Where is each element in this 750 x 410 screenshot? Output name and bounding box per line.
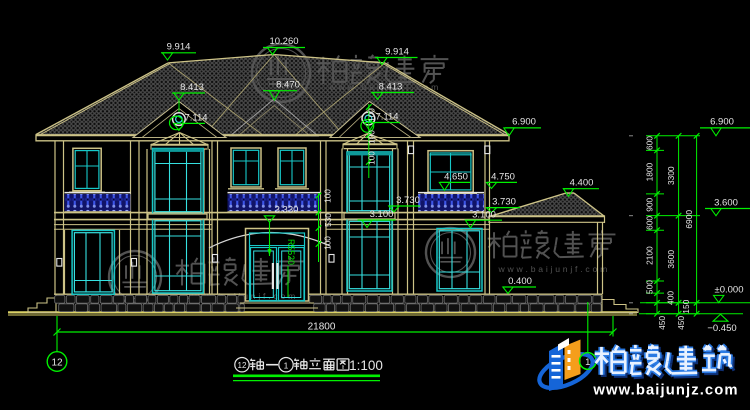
- svg-text:6900: 6900: [684, 210, 694, 229]
- svg-text:3.100: 3.100: [370, 209, 394, 220]
- svg-text:530: 530: [324, 213, 333, 227]
- svg-text:3600: 3600: [666, 250, 676, 269]
- svg-text:100: 100: [324, 236, 333, 250]
- svg-text:w w w . b a i j u n j f . c o: w w w . b a i j u n j f . c o m: [498, 264, 608, 274]
- svg-text:500: 500: [645, 280, 655, 294]
- svg-text:3.730: 3.730: [396, 195, 420, 206]
- svg-text:4.400: 4.400: [570, 178, 594, 189]
- svg-text:8.413: 8.413: [379, 81, 403, 92]
- svg-text:12: 12: [51, 357, 63, 368]
- svg-text:3.730: 3.730: [492, 197, 516, 208]
- svg-text:100: 100: [368, 108, 377, 122]
- svg-text:450: 450: [657, 316, 667, 330]
- svg-text:7.114: 7.114: [375, 112, 398, 123]
- svg-text:www.baijunjz.com: www.baijunjz.com: [592, 383, 738, 399]
- svg-text:3.330: 3.330: [275, 204, 299, 215]
- svg-text:100: 100: [368, 151, 377, 165]
- svg-text:100: 100: [324, 189, 333, 203]
- svg-text:±0.000: ±0.000: [715, 284, 744, 295]
- svg-text:100: 100: [368, 130, 377, 144]
- svg-text:4.650: 4.650: [444, 171, 468, 182]
- svg-text:8.413: 8.413: [180, 82, 204, 93]
- svg-text:0.400: 0.400: [508, 276, 532, 287]
- svg-text:3.100: 3.100: [472, 209, 496, 220]
- svg-text:3.600: 3.600: [714, 198, 738, 209]
- svg-text:600: 600: [645, 136, 655, 150]
- svg-text:2100: 2100: [645, 246, 655, 265]
- svg-text:9.914: 9.914: [385, 46, 409, 57]
- svg-text:8.470: 8.470: [276, 79, 300, 90]
- svg-text:900: 900: [645, 197, 655, 211]
- svg-text:1:100: 1:100: [349, 358, 383, 373]
- svg-text:21800: 21800: [308, 322, 336, 333]
- svg-text:R5520: R5520: [286, 239, 296, 265]
- svg-text:600: 600: [645, 216, 655, 230]
- svg-text:1: 1: [284, 360, 289, 370]
- svg-text:400: 400: [666, 291, 676, 305]
- svg-text:150: 150: [681, 299, 691, 313]
- svg-text:3300: 3300: [666, 166, 676, 185]
- svg-text:7.114: 7.114: [184, 113, 207, 124]
- svg-text:4.750: 4.750: [491, 171, 515, 182]
- svg-text:12: 12: [238, 361, 247, 370]
- svg-text:6.900: 6.900: [512, 117, 536, 128]
- svg-text:9.914: 9.914: [167, 42, 191, 53]
- svg-text:450: 450: [676, 316, 686, 330]
- svg-text:6.900: 6.900: [710, 117, 734, 128]
- svg-text:10.260: 10.260: [269, 36, 298, 47]
- svg-text:−0.450: −0.450: [707, 323, 736, 334]
- svg-text:1800: 1800: [645, 162, 655, 181]
